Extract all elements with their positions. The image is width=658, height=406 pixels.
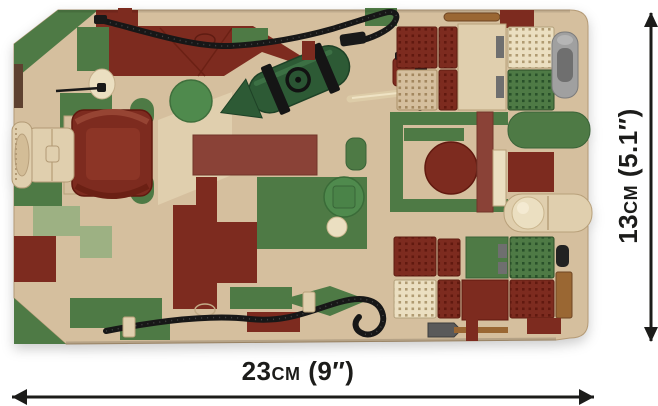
tool-handle xyxy=(454,327,508,333)
width-dimension-label: 23cm (9″) xyxy=(148,356,448,386)
arrow-right xyxy=(579,389,594,405)
height-dimension-label: 13cm (5.1″) xyxy=(613,66,643,286)
tank-model xyxy=(12,8,592,344)
arrow-up xyxy=(644,12,658,27)
arrow-left xyxy=(12,389,27,405)
width-dimension-line xyxy=(12,389,594,405)
tank-top-view-illustration xyxy=(0,0,658,406)
exhaust-pipe xyxy=(552,32,578,98)
product-dimensions-figure: 23cm (9″) 13cm (5.1″) xyxy=(0,0,658,406)
arrow-down xyxy=(644,327,658,342)
height-dimension-line xyxy=(644,12,658,342)
